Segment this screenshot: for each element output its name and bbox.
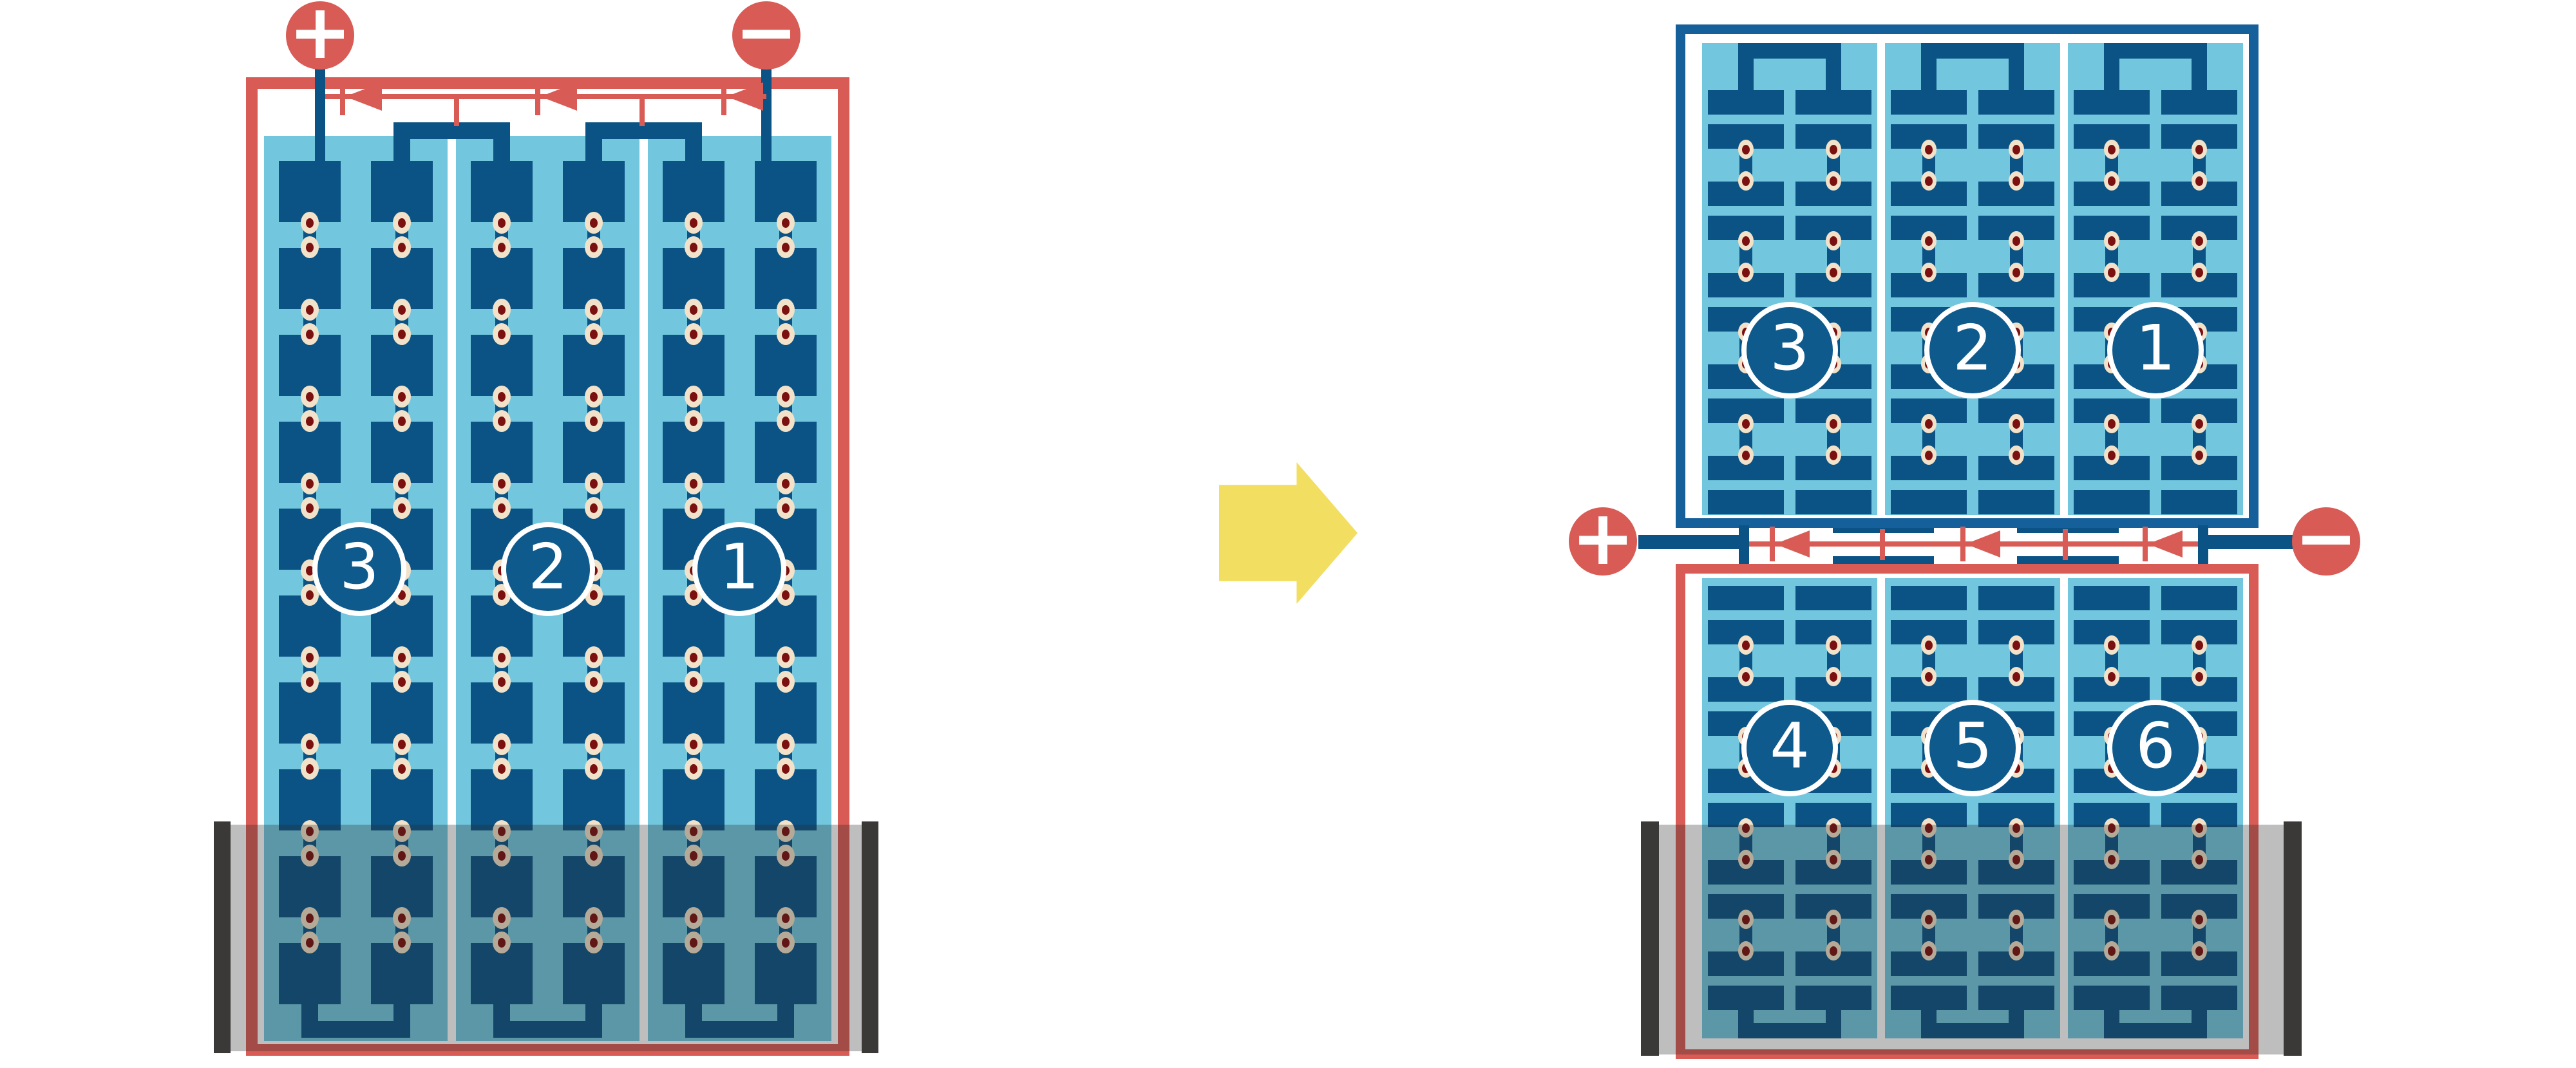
solder-joint-center [498, 653, 506, 662]
solder-joint [2009, 140, 2024, 159]
solder-joint-center [1830, 268, 1837, 277]
solder-joint-center [690, 503, 697, 513]
solder-joint-center [498, 740, 506, 749]
solder-joint-center [2195, 672, 2203, 682]
solder-joint-center [1742, 176, 1750, 186]
solder-joint [585, 758, 603, 780]
minus-icon: − [2295, 500, 2358, 576]
solder-joint-center [782, 392, 790, 402]
solder-joint [2192, 171, 2207, 191]
solder-joint [1826, 140, 1841, 159]
solder-joint [2104, 445, 2119, 465]
solder-joint-center [2195, 451, 2203, 460]
solder-joint [393, 323, 411, 345]
terminal-lead [761, 63, 772, 173]
solder-joint-center [2195, 419, 2203, 429]
solder-joint [685, 473, 703, 494]
solder-joint [393, 236, 411, 258]
solder-joint [685, 386, 703, 408]
solder-joint-center [1925, 176, 1933, 186]
solder-joint-center [590, 503, 598, 513]
solder-joint [585, 410, 603, 432]
solder-joint-center [1830, 451, 1837, 460]
plus-icon: + [289, 0, 352, 70]
solder-joint-center [2108, 268, 2116, 277]
solder-joint-center [590, 590, 598, 600]
plus-icon: + [1571, 500, 1635, 576]
solder-joint [2192, 414, 2207, 433]
solder-joint [585, 671, 603, 693]
solder-joint-center [590, 218, 598, 228]
solder-joint [685, 323, 703, 345]
solder-joint-center [782, 503, 790, 513]
solder-joint [2104, 263, 2119, 282]
solder-joint-center [1830, 236, 1837, 246]
minus-icon: − [735, 0, 799, 70]
solder-joint [777, 386, 795, 408]
solder-joint-center [306, 590, 314, 600]
solder-joint [2104, 667, 2119, 686]
solder-joint-center [782, 653, 790, 662]
solder-joint [1921, 140, 1937, 159]
solder-joint-center [782, 677, 790, 687]
solder-joint-center [1742, 419, 1750, 429]
solder-joint [585, 733, 603, 755]
diode-tap [639, 97, 645, 126]
solder-joint-center [498, 417, 506, 426]
solder-joint-center [1925, 672, 1933, 682]
diode-bar [721, 78, 726, 115]
solder-joint-center [306, 392, 314, 402]
solder-joint-center [690, 305, 697, 315]
right-shading-edge-left [1641, 821, 1659, 1056]
solder-joint [2104, 231, 2119, 250]
solder-joint-center [690, 653, 697, 662]
solder-joint [393, 212, 411, 234]
solder-joint-center [306, 677, 314, 687]
solder-joint [2192, 140, 2207, 159]
solder-joint-center [690, 764, 697, 774]
bypass-diode-icon [345, 82, 382, 111]
solder-joint [585, 386, 603, 408]
solder-joint-center [690, 218, 697, 228]
solder-joint-center [782, 479, 790, 489]
right-bottom-string-label-5: 5 [1924, 700, 2021, 796]
solder-joint [301, 733, 319, 755]
solder-joint [1921, 667, 1937, 686]
solder-joint [2009, 445, 2024, 465]
solder-joint [2104, 414, 2119, 433]
solder-joint [685, 497, 703, 519]
solder-joint [685, 212, 703, 234]
solder-joint-center [498, 503, 506, 513]
solder-joint [1921, 231, 1937, 250]
solder-joint [1921, 414, 1937, 433]
solder-joint [2192, 263, 2207, 282]
solder-joint-center [590, 653, 598, 662]
solder-joint-center [306, 218, 314, 228]
terminal-lead [2208, 535, 2293, 549]
solder-joint [1738, 635, 1754, 655]
solder-joint-center [498, 677, 506, 687]
solder-joint-center [690, 417, 697, 426]
right-top-string-label-1: 1 [2107, 302, 2204, 398]
solder-joint-center [690, 243, 697, 252]
solder-joint [777, 212, 795, 234]
solder-joint [2192, 635, 2207, 655]
right-bottom-string-label-4: 4 [1741, 700, 1838, 796]
solder-joint [777, 473, 795, 494]
solder-joint-center [1925, 268, 1933, 277]
solder-joint [301, 758, 319, 780]
solder-joint [493, 671, 511, 693]
left-positive-terminal: + [286, 1, 354, 70]
solder-joint [393, 386, 411, 408]
solder-joint [493, 299, 511, 321]
solder-joint [585, 299, 603, 321]
solder-joint-center [306, 503, 314, 513]
diode-bar [1960, 527, 1965, 562]
solder-joint [2192, 231, 2207, 250]
solder-joint-center [2108, 451, 2116, 460]
solder-joint [1921, 445, 1937, 465]
solder-joint-center [498, 243, 506, 252]
solder-joint [1738, 445, 1754, 465]
solder-joint-center [590, 740, 598, 749]
solder-joint-center [306, 243, 314, 252]
solder-joint-center [398, 392, 406, 402]
solder-joint [393, 410, 411, 432]
solder-joint [301, 497, 319, 519]
solder-joint [1738, 414, 1754, 433]
diode-tap [2063, 529, 2068, 560]
solder-joint [1826, 414, 1841, 433]
solder-joint [777, 733, 795, 755]
right-top-module-frame [1676, 24, 2259, 528]
solder-joint-center [590, 677, 598, 687]
solder-joint-center [590, 243, 598, 252]
solder-joint [393, 758, 411, 780]
bypass-diode-icon [2148, 530, 2183, 557]
solder-joint [1738, 667, 1754, 686]
solder-joint-center [590, 479, 598, 489]
solder-joint [1826, 635, 1841, 655]
solder-joint-center [1925, 236, 1933, 246]
solder-joint-center [1742, 268, 1750, 277]
left-shading-edge-right [862, 821, 878, 1053]
solder-joint [301, 473, 319, 494]
diode-tap [454, 97, 459, 126]
solder-joint-center [398, 417, 406, 426]
right-positive-terminal: + [1569, 507, 1637, 576]
right-top-string-label-3: 3 [1741, 302, 1838, 398]
solder-joint-center [1742, 672, 1750, 682]
solder-joint-center [590, 392, 598, 402]
solder-joint-center [306, 479, 314, 489]
left-string-label-1: 1 [692, 522, 786, 616]
solder-joint [393, 473, 411, 494]
junction-riser [2198, 525, 2208, 564]
solder-joint-center [690, 740, 697, 749]
interconnect-tab [2017, 556, 2119, 564]
solder-joint [2009, 171, 2024, 191]
solder-joint-center [1925, 641, 1933, 650]
left-string-label-3: 3 [312, 522, 406, 616]
solder-joint-center [498, 764, 506, 774]
solder-joint-center [2195, 145, 2203, 155]
solder-joint-center [498, 479, 506, 489]
solder-joint [1826, 445, 1841, 465]
solder-joint [301, 212, 319, 234]
solder-joint-center [398, 503, 406, 513]
solder-joint [393, 733, 411, 755]
bypass-diode-icon [540, 82, 577, 111]
solder-joint-center [306, 653, 314, 662]
solder-joint [2009, 667, 2024, 686]
solder-joint-center [306, 740, 314, 749]
solder-joint-center [398, 677, 406, 687]
solder-joint-center [1925, 145, 1933, 155]
solder-joint [685, 236, 703, 258]
solder-joint-center [2012, 419, 2020, 429]
solder-joint [1826, 667, 1841, 686]
solder-joint [301, 299, 319, 321]
right-negative-terminal: − [2292, 507, 2360, 576]
solder-joint-center [398, 764, 406, 774]
solder-joint [301, 386, 319, 408]
solder-joint [585, 212, 603, 234]
solder-joint-center [1830, 145, 1837, 155]
solder-joint [685, 646, 703, 668]
solder-joint-center [2012, 641, 2020, 650]
solder-joint [777, 758, 795, 780]
solder-joint [777, 671, 795, 693]
transition-arrow-icon [1219, 462, 1358, 604]
bypass-diode-icon [726, 82, 763, 111]
solder-joint [685, 410, 703, 432]
solder-joint-center [398, 218, 406, 228]
solder-joint [1738, 171, 1754, 191]
solder-joint-center [2195, 641, 2203, 650]
solder-joint-center [2012, 451, 2020, 460]
solder-joint-center [782, 764, 790, 774]
solder-joint-center [2012, 176, 2020, 186]
diode-bar [2143, 527, 2148, 562]
solder-joint [1921, 263, 1937, 282]
solder-joint-center [590, 764, 598, 774]
solder-joint [1826, 263, 1841, 282]
solder-joint [1826, 231, 1841, 250]
solder-joint-center [306, 330, 314, 339]
figure-canvas: + − 3 2 1 3 2 1 + − [0, 0, 2576, 1068]
solder-joint-center [306, 417, 314, 426]
solder-joint [585, 473, 603, 494]
junction-riser [1739, 525, 1749, 564]
bypass-diode-icon [1965, 530, 2000, 557]
solder-joint-center [690, 590, 697, 600]
solder-joint-center [2195, 176, 2203, 186]
solder-joint-center [782, 218, 790, 228]
solder-joint-center [2195, 236, 2203, 246]
solder-joint [585, 236, 603, 258]
solder-joint [777, 646, 795, 668]
solder-joint [301, 236, 319, 258]
solder-joint-center [782, 590, 790, 600]
solder-joint-center [1830, 176, 1837, 186]
solder-joint-center [1830, 672, 1837, 682]
solder-joint [585, 497, 603, 519]
right-top-string-label-2: 2 [1924, 302, 2021, 398]
solder-joint [393, 497, 411, 519]
solder-joint-center [498, 590, 506, 600]
solder-joint [1738, 231, 1754, 250]
solder-joint [777, 497, 795, 519]
solder-joint-center [2108, 145, 2116, 155]
solder-joint [393, 671, 411, 693]
solder-joint [493, 410, 511, 432]
solder-joint [585, 646, 603, 668]
solder-joint-center [498, 305, 506, 315]
solder-joint-center [2195, 268, 2203, 277]
solder-joint [1826, 171, 1841, 191]
solder-joint-center [782, 330, 790, 339]
terminal-lead [315, 63, 325, 173]
solder-joint [301, 323, 319, 345]
solder-joint-center [398, 653, 406, 662]
solder-joint-center [1742, 451, 1750, 460]
solder-joint [301, 671, 319, 693]
solder-joint-center [2108, 672, 2116, 682]
solder-joint [493, 323, 511, 345]
solder-joint [493, 386, 511, 408]
left-string-label-2: 2 [501, 522, 595, 616]
left-shading-edge-left [214, 821, 231, 1053]
solder-joint-center [498, 392, 506, 402]
solder-joint [2009, 635, 2024, 655]
solder-joint [493, 733, 511, 755]
solder-joint [1921, 635, 1937, 655]
solder-joint-center [2012, 145, 2020, 155]
solder-joint-center [1925, 419, 1933, 429]
solder-joint-center [782, 417, 790, 426]
solder-joint-center [2108, 641, 2116, 650]
solder-joint [777, 323, 795, 345]
solder-joint-center [590, 305, 598, 315]
diode-bar [1770, 527, 1775, 562]
solder-joint [2192, 445, 2207, 465]
solder-joint [2009, 263, 2024, 282]
solder-joint-center [690, 677, 697, 687]
solder-joint-center [1830, 419, 1837, 429]
solder-joint [493, 758, 511, 780]
solder-joint-center [690, 479, 697, 489]
solder-joint-center [2012, 236, 2020, 246]
solder-joint [2009, 231, 2024, 250]
solder-joint [2104, 635, 2119, 655]
solder-joint [2192, 667, 2207, 686]
solder-joint [493, 497, 511, 519]
solder-joint [777, 299, 795, 321]
right-bottom-string-label-6: 6 [2107, 700, 2204, 796]
left-negative-terminal: − [732, 1, 800, 70]
solder-joint [1738, 140, 1754, 159]
solder-joint [1921, 171, 1937, 191]
solder-joint [2104, 140, 2119, 159]
right-shading-edge-right [2284, 821, 2302, 1056]
solder-joint [301, 646, 319, 668]
solder-joint-center [1925, 451, 1933, 460]
solder-joint [301, 410, 319, 432]
solder-joint-center [398, 479, 406, 489]
solder-joint [685, 671, 703, 693]
solder-joint-center [398, 243, 406, 252]
solder-joint-center [1742, 145, 1750, 155]
solder-joint [393, 299, 411, 321]
solder-joint [493, 236, 511, 258]
left-shading-overlay [231, 825, 862, 1051]
solder-joint-center [2108, 419, 2116, 429]
solder-joint-center [398, 305, 406, 315]
solder-joint-center [782, 305, 790, 315]
solder-joint-center [690, 330, 697, 339]
solder-joint-center [306, 764, 314, 774]
solder-joint-center [782, 740, 790, 749]
solder-joint-center [1830, 641, 1837, 650]
solder-joint [777, 410, 795, 432]
solder-joint [2009, 414, 2024, 433]
solder-joint-center [498, 330, 506, 339]
diode-tap [1880, 529, 1885, 560]
solder-joint-center [1742, 641, 1750, 650]
bypass-diode-icon [1775, 530, 1810, 557]
solder-joint-center [1742, 236, 1750, 246]
solder-joint-center [398, 740, 406, 749]
solder-joint-center [498, 218, 506, 228]
solder-joint-center [690, 392, 697, 402]
solder-joint [685, 758, 703, 780]
solder-joint [777, 236, 795, 258]
diode-bar [340, 78, 345, 115]
terminal-lead [1638, 535, 1740, 549]
solder-joint [493, 646, 511, 668]
solder-joint [493, 212, 511, 234]
solder-joint [493, 473, 511, 494]
solder-joint-center [398, 330, 406, 339]
solder-joint [685, 733, 703, 755]
solder-joint-center [2108, 176, 2116, 186]
solder-joint-center [2012, 672, 2020, 682]
solder-joint-center [2012, 268, 2020, 277]
right-shading-overlay [1659, 825, 2284, 1054]
solder-joint [2104, 171, 2119, 191]
diode-bar [535, 78, 540, 115]
solder-joint-center [590, 330, 598, 339]
solder-joint [685, 299, 703, 321]
solder-joint [1738, 263, 1754, 282]
solder-joint [585, 323, 603, 345]
solder-joint-center [590, 417, 598, 426]
solder-joint-center [2108, 236, 2116, 246]
solder-joint [393, 646, 411, 668]
solder-joint-center [306, 305, 314, 315]
solder-joint-center [782, 243, 790, 252]
